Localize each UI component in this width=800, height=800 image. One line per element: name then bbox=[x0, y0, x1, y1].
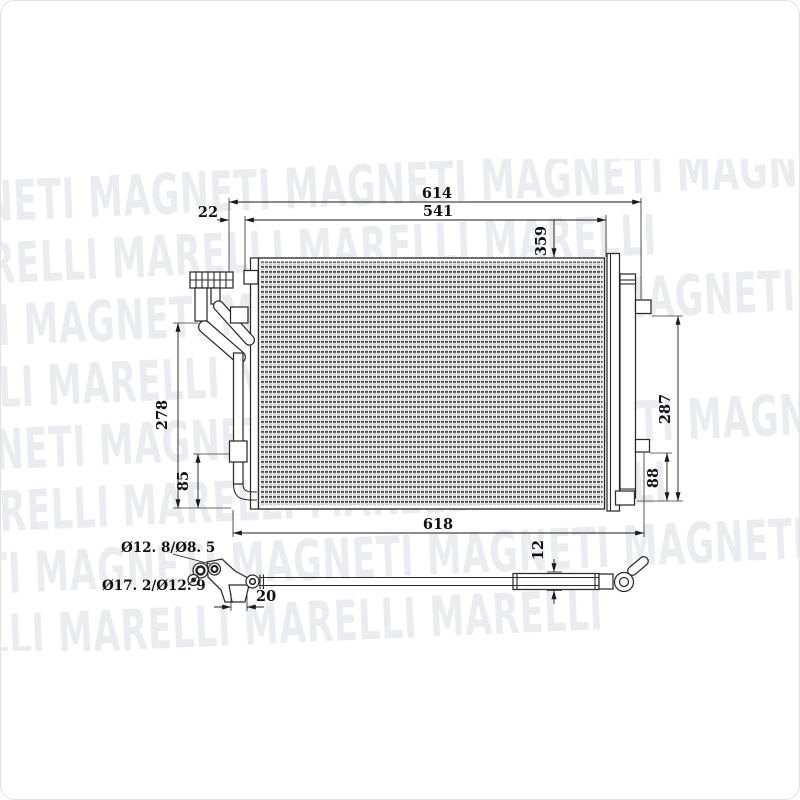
pipe-stub-left bbox=[195, 288, 207, 321]
dim-20-label: 20 bbox=[256, 588, 276, 605]
dimension-614: 614 bbox=[229, 185, 641, 202]
dim-22-label: 22 bbox=[198, 204, 218, 221]
tube-joint-inner bbox=[250, 579, 256, 585]
diameter-callout-top: Ø12. 8/Ø8. 5 bbox=[121, 540, 215, 564]
dim-359-label: 359 bbox=[533, 226, 550, 256]
eye-fitting-inner bbox=[620, 578, 629, 587]
port-small-inner bbox=[212, 566, 218, 572]
dimension-359: 359 bbox=[533, 220, 554, 257]
pipe-flange bbox=[230, 441, 248, 462]
condenser-core bbox=[251, 258, 605, 509]
bracket-foot bbox=[229, 585, 249, 602]
tube-sleeve bbox=[513, 574, 599, 590]
tube-end-cap bbox=[599, 574, 613, 589]
condenser-technical-diagram: 614 22 541 359 278 85 bbox=[1, 1, 799, 799]
right-side-plate bbox=[607, 254, 620, 512]
dim-541-label: 541 bbox=[423, 203, 453, 220]
dimension-88: 88 bbox=[645, 453, 667, 501]
left-header-tank bbox=[251, 258, 259, 509]
product-drawing-canvas: MAGNETI MAGNETI MAGNETI MAGNETI MAGNETI … bbox=[0, 0, 800, 800]
dia-top-label: Ø12. 8/Ø8. 5 bbox=[121, 540, 215, 556]
dia-bottom-label: Ø17. 2/Ø12. 9 bbox=[102, 578, 206, 594]
diameter-callout-bottom: Ø17. 2/Ø12. 9 bbox=[102, 576, 206, 594]
dimension-618: 618 bbox=[233, 516, 644, 533]
inlet-outlet-pipes bbox=[190, 271, 258, 501]
dimension-22: 22 bbox=[198, 204, 229, 221]
dim-88-label: 88 bbox=[645, 468, 662, 488]
top-left-fitting bbox=[244, 271, 258, 285]
core-fins-texture bbox=[261, 262, 603, 506]
dim-278-label: 278 bbox=[154, 400, 171, 430]
receiver-drier bbox=[620, 274, 636, 498]
core-mount-block bbox=[231, 307, 249, 323]
drier-foot bbox=[616, 491, 635, 505]
dim-12-label: 12 bbox=[530, 540, 547, 560]
dimension-541: 541 bbox=[245, 203, 606, 220]
dim-287-label: 287 bbox=[657, 394, 674, 424]
dim-614-label: 614 bbox=[422, 185, 452, 202]
mount-tab-top bbox=[636, 300, 652, 314]
pipe-vertical bbox=[234, 353, 244, 484]
condenser-front-view bbox=[190, 254, 651, 512]
port-large-inner bbox=[197, 567, 205, 575]
dim-85-label: 85 bbox=[175, 471, 192, 491]
mount-tab-bottom bbox=[636, 440, 650, 453]
dim-618-label: 618 bbox=[423, 516, 453, 533]
